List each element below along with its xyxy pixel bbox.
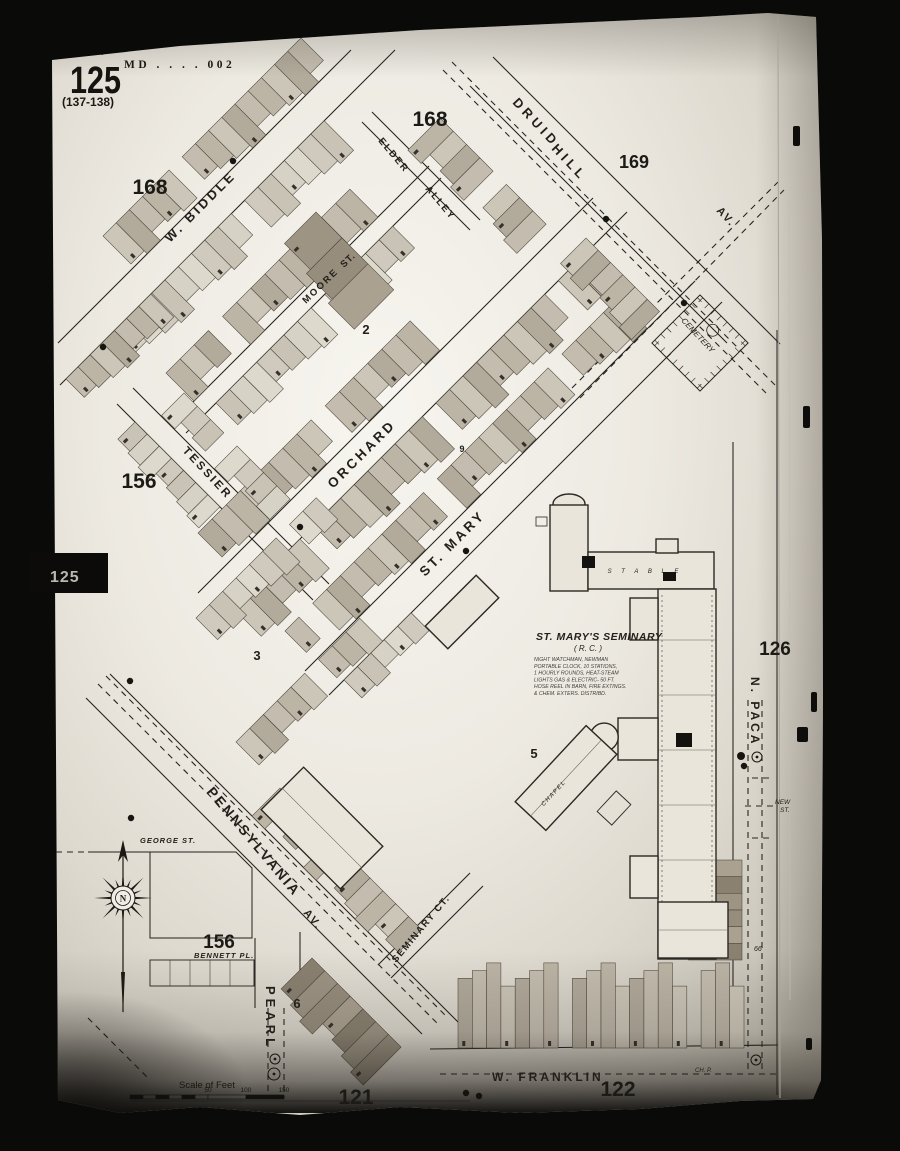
stable-wing-bay — [656, 539, 678, 553]
area-number-156: 156 — [121, 470, 156, 493]
edge-ink-mark — [803, 406, 810, 428]
poi-label-ch-p: CH. P. — [695, 1068, 712, 1074]
block-number-3: 3 — [253, 648, 260, 663]
poi-label-new: NEW — [775, 799, 791, 806]
block-number-6: 6 — [293, 996, 300, 1011]
street-monument-dot — [463, 548, 469, 554]
area-number-126: 126 — [759, 639, 791, 660]
block-number-5: 5 — [530, 746, 537, 761]
street-label-w-franklin: W. FRANKLIN — [492, 1070, 604, 1084]
sanborn-map-sheet: CHAPELScale of Feet50100150NW. BIDDLEDRU… — [0, 0, 900, 1151]
elevator-shaft-mark — [676, 733, 692, 747]
street-monument-dot — [100, 344, 106, 350]
street-monument-dot — [230, 158, 236, 164]
corner-shade-overlay — [52, 985, 242, 1113]
seminary-front-building — [550, 505, 588, 591]
edge-ink-mark — [806, 1038, 812, 1050]
sheet-plate-range: (137-138) — [62, 95, 114, 109]
sheet-code: MD . . . . 002 — [124, 59, 235, 71]
street-monument-dot — [128, 815, 134, 821]
seminary-title: ST. MARY'S SEMINARY — [536, 631, 663, 643]
area-number-122: 122 — [600, 1078, 635, 1101]
seminary-west-wing — [618, 718, 658, 760]
street-monument-dot — [297, 524, 303, 530]
seminary-note-line: & CHEM. EXTERS. DISTRIBD. — [534, 691, 606, 697]
area-number-168: 168 — [412, 108, 447, 131]
street-monument-dot — [681, 300, 687, 306]
seminary-subtitle: ( R. C. ) — [574, 644, 602, 653]
edge-ink-mark — [793, 126, 800, 146]
seminary-note-line: NIGHT WATCHMAN, NEWMAN — [534, 657, 608, 663]
area-number-169: 169 — [619, 152, 649, 172]
seminary-note-line: 1 HOURLY ROUNDS, HEAT-STEAM — [534, 671, 619, 677]
elevator-shaft-mark — [582, 556, 595, 568]
index-tab-number: 125 — [50, 569, 80, 586]
hydrant-symbol — [737, 752, 745, 760]
compass-north-letter: N — [120, 894, 127, 904]
area-number-168: 168 — [132, 176, 167, 199]
poi-label-st: ST. — [780, 807, 790, 814]
map-canvas: CHAPELScale of Feet50100150NW. BIDDLEDRU… — [0, 0, 900, 1151]
seminary-note-line: LIGHTS GAS & ELECTRIC- 50 FT. — [534, 677, 615, 683]
edge-ink-mark — [797, 727, 808, 742]
poi-label-66: 66 — [754, 946, 762, 953]
seminary-note-line: HOSE REEL IN BARN, FIRE EXTINGS. — [534, 684, 626, 690]
street-monument-dot — [127, 678, 133, 684]
sheet-tab: 125 — [30, 553, 108, 593]
block-number-9: 9 — [459, 444, 464, 454]
seminary-west-wing — [630, 856, 658, 898]
street-label-n-paca: N. PACA — [748, 677, 762, 746]
block-number-2: 2 — [362, 322, 369, 337]
street-monument-dot — [741, 763, 747, 769]
street-monument-dot — [603, 216, 609, 222]
seminary-note-line: PORTABLE CLOCK, 10 STATIONS, — [534, 664, 617, 670]
edge-ink-mark — [811, 692, 817, 712]
street-label-pearl: PEARL — [263, 986, 278, 1050]
area-number-121: 121 — [338, 1086, 373, 1109]
street-label-george-st: GEORGE ST. — [140, 836, 196, 845]
stable-label: S T A B L E — [608, 569, 683, 575]
area-number-156: 156 — [203, 932, 235, 953]
